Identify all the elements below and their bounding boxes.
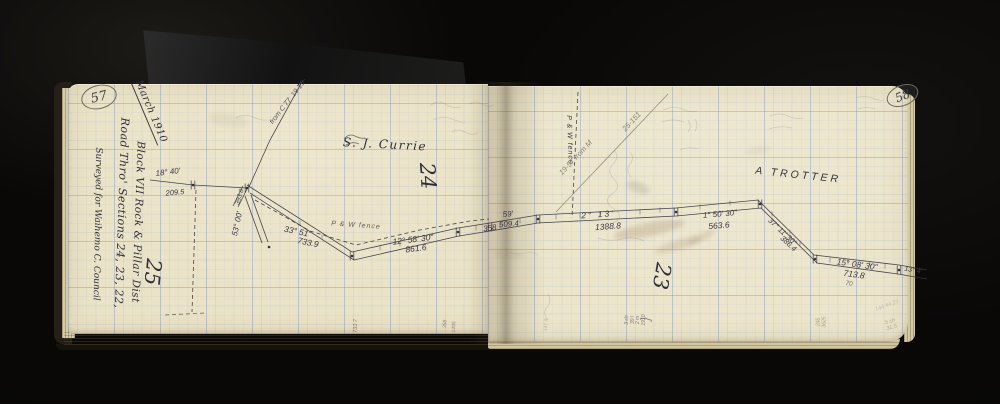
pencil-scribble — [236, 115, 267, 120]
dashed-bottom-left — [165, 313, 205, 315]
dashed-vertical-left — [192, 190, 196, 312]
pencil-scribble — [856, 97, 884, 110]
page-number-left-value: 57 — [89, 88, 109, 107]
station-dot — [898, 269, 901, 272]
station-dot — [192, 184, 195, 187]
station-dot — [759, 203, 762, 206]
pencil-scribble — [430, 102, 465, 122]
station-dot — [814, 258, 817, 261]
survey-sketch — [0, 0, 1000, 404]
station-dot — [675, 211, 678, 214]
pencil-scribble — [769, 114, 803, 129]
station-dot — [246, 187, 249, 190]
wedge-line-a — [233, 186, 243, 206]
station-dot — [268, 246, 271, 249]
diagonal-end-tick — [297, 79, 305, 86]
station-dot — [351, 255, 354, 258]
photo-scene: March 1910Road Thro' Sections 24, 23, 22… — [0, 0, 1000, 404]
fence-dashed-right — [572, 92, 578, 218]
pencil-scribble — [598, 238, 644, 241]
diagonal-ref-line — [249, 80, 303, 187]
pencil-scribble — [508, 252, 538, 255]
page-number-right-value: 58 — [893, 86, 912, 105]
station-dot — [457, 231, 460, 234]
wedge-line-b — [238, 187, 248, 207]
pencil-scribble — [680, 119, 698, 150]
pencil-scribble — [470, 102, 494, 106]
station-dot — [537, 218, 540, 221]
fence-dashed-left — [255, 200, 489, 245]
pencil-scribble — [344, 135, 365, 145]
pencil-scribble — [545, 294, 550, 320]
pencil-scribble — [607, 150, 619, 223]
approach-line — [150, 180, 247, 188]
traverse-lower — [250, 193, 927, 279]
pencil-scribble — [628, 152, 633, 177]
pencil-scribble — [662, 107, 697, 122]
pencil-scribble — [452, 130, 478, 134]
